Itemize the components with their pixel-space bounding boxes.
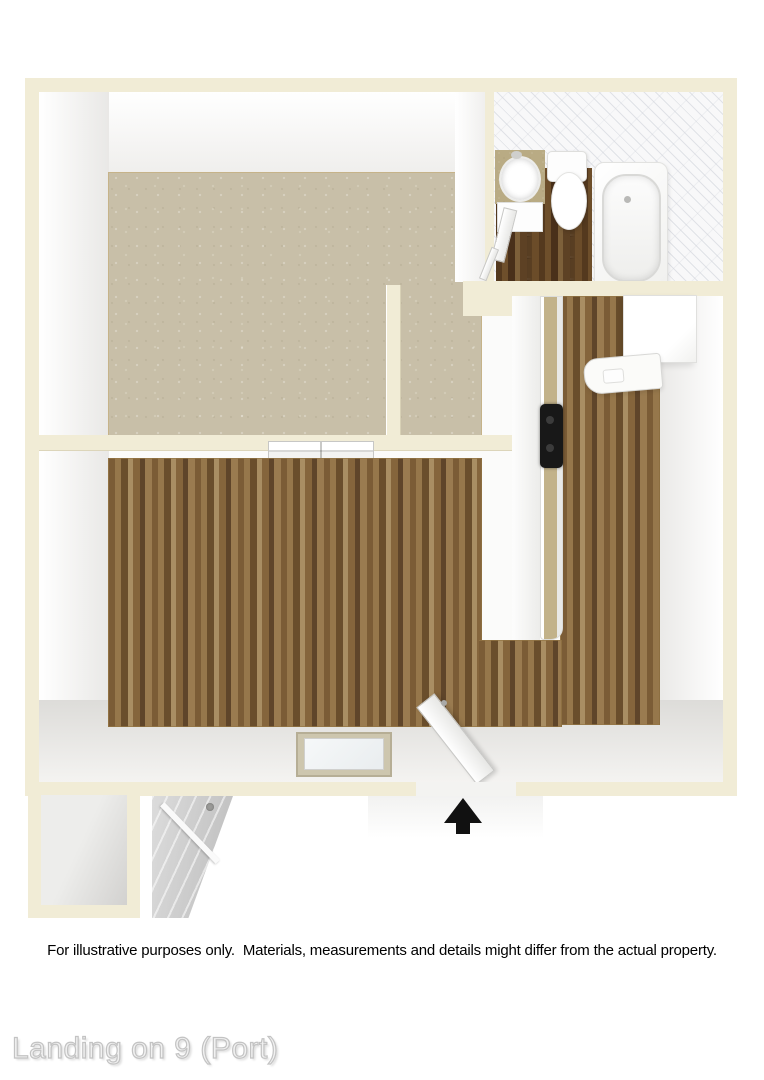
bathtub-basin bbox=[602, 174, 661, 282]
bedroom-closet-divider-wall bbox=[386, 285, 401, 437]
entry-arrow-stem bbox=[456, 822, 470, 834]
refrigerator bbox=[623, 295, 697, 363]
toilet-bowl bbox=[551, 172, 587, 230]
exterior-door-knob bbox=[206, 803, 214, 811]
exterior-storage-closet bbox=[28, 782, 140, 918]
living-kitchen-floor-connector bbox=[479, 640, 562, 727]
stove-cooktop bbox=[540, 404, 563, 468]
bathroom-sink bbox=[499, 156, 541, 202]
floorplan-image: For illustrative purposes only. Material… bbox=[0, 0, 764, 1080]
kitchen-faucet bbox=[602, 368, 624, 384]
bathroom-faucet bbox=[511, 151, 522, 159]
entry-doorway-gap bbox=[416, 782, 516, 796]
exterior-entry-door-panels bbox=[152, 796, 233, 918]
kitchen-counter bbox=[540, 296, 563, 640]
bedroom-floor bbox=[108, 172, 482, 437]
floor-window-glass bbox=[304, 738, 384, 770]
stove-burner bbox=[546, 444, 554, 452]
bathroom-wall-stub bbox=[463, 296, 512, 316]
entry-door-knob bbox=[441, 700, 447, 706]
disclaimer-text: For illustrative purposes only. Material… bbox=[0, 942, 764, 959]
stove-burner bbox=[546, 416, 554, 424]
entry-arrow-icon bbox=[444, 798, 482, 823]
bathroom-bottom-wall bbox=[463, 281, 723, 296]
bathtub-drain bbox=[624, 196, 631, 203]
floorplan-title: Landing on 9 (Port) bbox=[12, 1032, 278, 1066]
living-room-floor bbox=[108, 458, 482, 727]
